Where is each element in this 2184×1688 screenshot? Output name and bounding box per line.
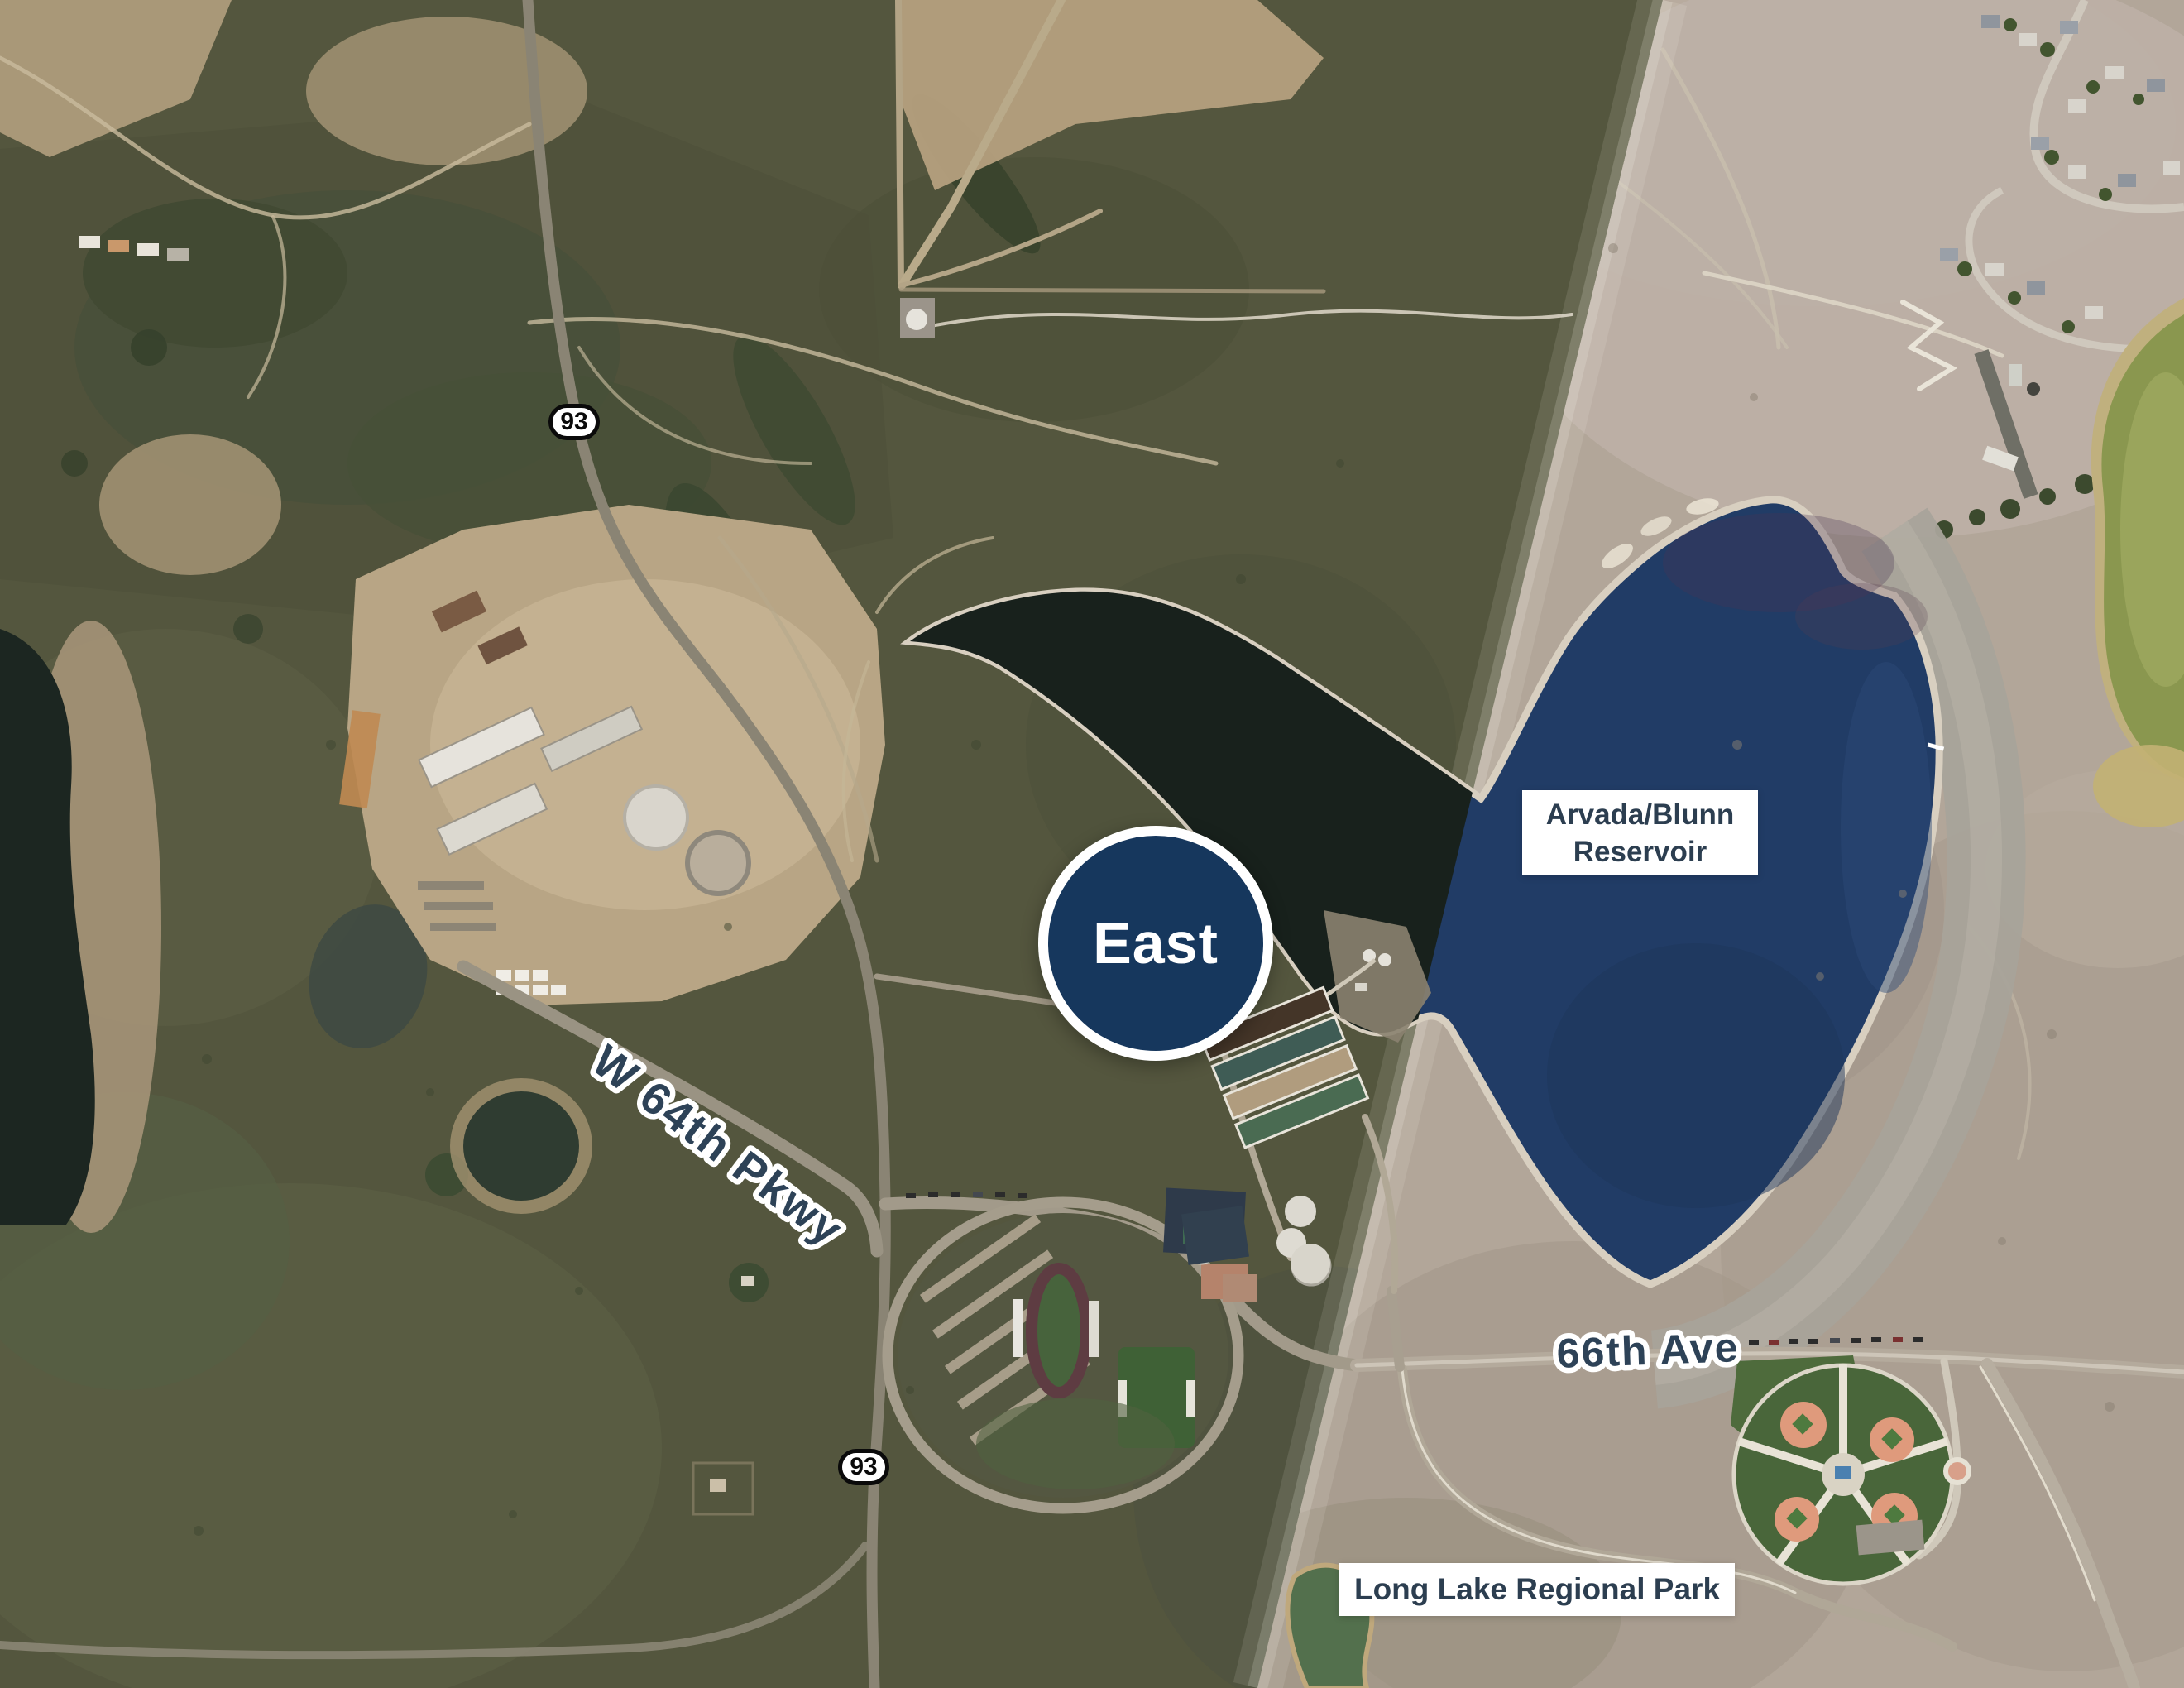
road-label-66th-ave: 66th Ave	[1556, 1324, 1741, 1377]
bleachers	[1089, 1301, 1099, 1357]
label-arvada-blunn-reservoir: Arvada/Blunn Reservoir	[1522, 790, 1758, 875]
label-long-lake-regional-park: Long Lake Regional Park	[1339, 1563, 1735, 1616]
region-marker-label: East	[1093, 910, 1219, 976]
reservoir-label-line2: Reservoir	[1573, 833, 1707, 870]
highway-shield-93-south: 93	[838, 1449, 889, 1485]
bleachers	[1013, 1299, 1023, 1357]
running-track	[1032, 1268, 1086, 1393]
construction-site	[339, 505, 885, 1005]
west-lake	[0, 621, 161, 1233]
region-marker-east[interactable]: East	[1038, 826, 1273, 1061]
reservoir-label-line1: Arvada/Blunn	[1546, 796, 1735, 833]
shield-number: 93	[850, 1453, 877, 1481]
shield-number: 93	[560, 408, 587, 436]
park-label-text: Long Lake Regional Park	[1354, 1573, 1720, 1606]
highway-shield-93-north: 93	[548, 404, 600, 440]
map-root: W 64th Pkwy 66th Ave 93 93 Arvada/Blunn …	[0, 0, 2184, 1688]
